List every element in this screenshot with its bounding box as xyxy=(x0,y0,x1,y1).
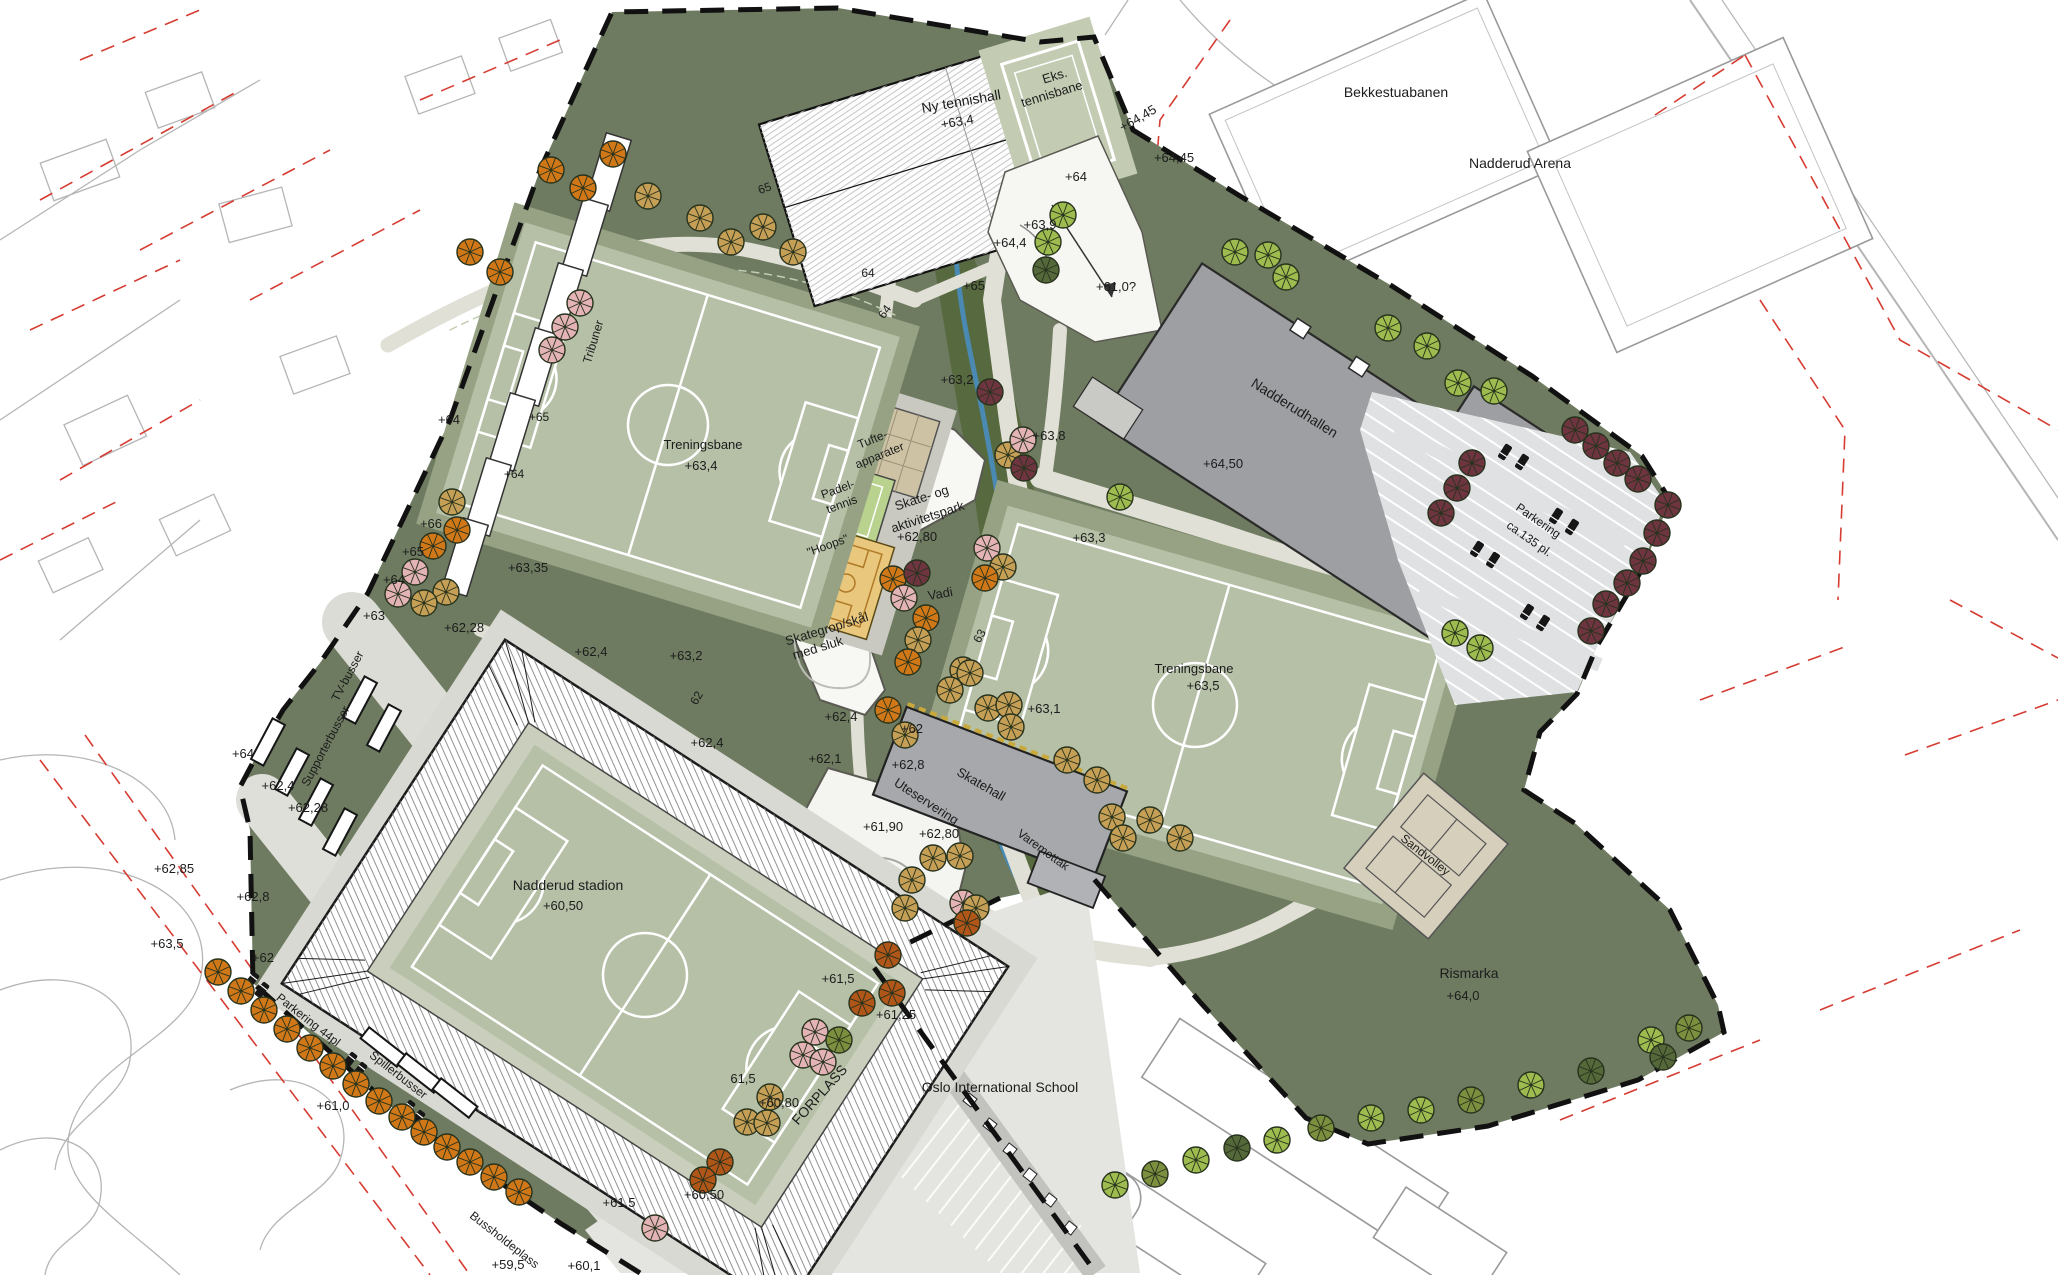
map-label: +63 xyxy=(363,608,385,623)
map-label: Treningsbane xyxy=(663,437,742,452)
tree-icon xyxy=(1167,825,1193,851)
tree-icon xyxy=(1264,1127,1290,1153)
map-label: Oslo International School xyxy=(922,1079,1078,1095)
tree-icon xyxy=(1655,492,1681,518)
tree-icon xyxy=(875,942,901,968)
map-label: +66 xyxy=(420,516,442,531)
tree-icon xyxy=(1102,1172,1128,1198)
tree-icon xyxy=(1578,618,1604,644)
tree-icon xyxy=(274,1016,300,1042)
tree-icon xyxy=(1183,1147,1209,1173)
tree-icon xyxy=(411,1119,437,1145)
tree-icon xyxy=(642,1215,668,1241)
map-label: +64,50 xyxy=(1203,456,1243,471)
map-label: +64 xyxy=(438,412,460,427)
map-label: +63,8 xyxy=(1033,428,1066,443)
map-label: 64 xyxy=(861,266,875,280)
tree-icon xyxy=(1222,239,1248,265)
map-label: +62,4 xyxy=(262,778,295,793)
tree-icon xyxy=(687,205,713,231)
map-label: +62,1 xyxy=(809,751,842,766)
map-label: +65 xyxy=(529,410,550,424)
tree-icon xyxy=(1054,747,1080,773)
tree-icon xyxy=(895,649,921,675)
map-label: +65 xyxy=(402,544,424,559)
map-label: 61,5 xyxy=(730,1071,755,1086)
tree-icon xyxy=(1630,548,1656,574)
map-label: Bekkestuabanen xyxy=(1344,84,1448,100)
map-label: +61,0? xyxy=(1096,279,1136,294)
map-label: +62 xyxy=(901,721,923,736)
tree-icon xyxy=(366,1088,392,1114)
tree-icon xyxy=(1604,450,1630,476)
tree-icon xyxy=(457,1149,483,1175)
tree-icon xyxy=(1444,475,1470,501)
map-label: +60,1 xyxy=(568,1258,601,1273)
tree-icon xyxy=(1445,370,1471,396)
tree-icon xyxy=(600,141,626,167)
map-label: +64,45 xyxy=(1154,150,1194,165)
tree-icon xyxy=(826,1027,852,1053)
tree-icon xyxy=(920,845,946,871)
map-label: +63,5 xyxy=(151,936,184,951)
map-label: +60,50 xyxy=(543,898,583,913)
map-label: +63,35 xyxy=(508,560,548,575)
map-label: +63,3 xyxy=(1073,530,1106,545)
map-label: +62,28 xyxy=(444,620,484,635)
tree-icon xyxy=(718,229,744,255)
tree-icon xyxy=(411,590,437,616)
tree-icon xyxy=(1224,1135,1250,1161)
map-label: +59,5 xyxy=(492,1257,525,1272)
tree-icon xyxy=(343,1071,369,1097)
tree-icon xyxy=(1676,1015,1702,1041)
tree-icon xyxy=(1308,1115,1334,1141)
map-label: +64 xyxy=(504,467,525,481)
map-label: +65 xyxy=(963,278,985,293)
tree-icon xyxy=(891,585,917,611)
tree-icon xyxy=(1428,500,1454,526)
tree-icon xyxy=(434,1134,460,1160)
tree-icon xyxy=(444,517,470,543)
map-label: +60,50 xyxy=(684,1187,724,1202)
map-label: +64,4 xyxy=(994,235,1027,250)
tree-icon xyxy=(892,895,918,921)
tree-icon xyxy=(1107,484,1133,510)
tree-icon xyxy=(750,214,776,240)
tree-icon xyxy=(780,239,806,265)
tree-icon xyxy=(1137,807,1163,833)
tree-icon xyxy=(1644,520,1670,546)
tree-icon xyxy=(1614,570,1640,596)
tree-icon xyxy=(481,1164,507,1190)
map-label: +62,4 xyxy=(691,735,724,750)
map-label: +62,8 xyxy=(237,889,270,904)
tree-icon xyxy=(1358,1105,1384,1131)
tree-icon xyxy=(439,489,465,515)
tree-icon xyxy=(947,843,973,869)
map-label: +62,85 xyxy=(154,861,194,876)
tree-icon xyxy=(1593,591,1619,617)
tree-icon xyxy=(1408,1097,1434,1123)
tree-icon xyxy=(506,1179,532,1205)
tree-icon xyxy=(1650,1044,1676,1070)
map-label: +64 xyxy=(1065,169,1087,184)
map-label: Nadderud Arena xyxy=(1469,155,1571,171)
tree-icon xyxy=(1442,620,1468,646)
map-label: +63,1 xyxy=(1028,701,1061,716)
tree-icon xyxy=(635,183,661,209)
map-label: +64,0 xyxy=(1447,988,1480,1003)
tree-icon xyxy=(1110,825,1136,851)
tree-icon xyxy=(998,714,1024,740)
site-plan-map: Eks.tennisbane+64,45+64,45Bekkestuabanen… xyxy=(0,0,2058,1275)
tree-icon xyxy=(899,867,925,893)
tree-icon xyxy=(1458,1087,1484,1113)
tree-icon xyxy=(539,337,565,363)
map-label: Nadderud stadion xyxy=(513,877,624,893)
tree-icon xyxy=(389,1104,415,1130)
tree-icon xyxy=(1583,433,1609,459)
map-label: +63,4 xyxy=(685,458,718,473)
tree-icon xyxy=(1142,1161,1168,1187)
tree-icon xyxy=(1578,1058,1604,1084)
map-label: +62,28 xyxy=(288,800,328,815)
map-label: +62 xyxy=(252,950,274,965)
map-label: +62,80 xyxy=(919,826,959,841)
tree-icon xyxy=(1011,455,1037,481)
site-plan-page: Eks.tennisbane+64,45+64,45Bekkestuabanen… xyxy=(0,0,2058,1275)
map-label: +62,4 xyxy=(575,644,608,659)
tree-icon xyxy=(1459,450,1485,476)
map-label: +61,5 xyxy=(603,1195,636,1210)
map-label: +62,4 xyxy=(825,709,858,724)
tree-icon xyxy=(1414,333,1440,359)
map-label: +63,2 xyxy=(670,648,703,663)
tree-icon xyxy=(205,959,231,985)
tree-icon xyxy=(849,990,875,1016)
tree-icon xyxy=(228,978,254,1004)
tree-icon xyxy=(457,239,483,265)
tree-icon xyxy=(1562,417,1588,443)
tree-icon xyxy=(957,660,983,686)
map-label: +61,0 xyxy=(317,1098,350,1113)
tree-icon xyxy=(570,175,596,201)
map-label: +64 xyxy=(383,572,405,587)
tree-icon xyxy=(552,314,578,340)
map-label: Rismarka xyxy=(1439,965,1498,981)
tree-icon xyxy=(802,1019,828,1045)
tree-icon xyxy=(1375,315,1401,341)
tree-icon xyxy=(875,697,901,723)
map-label: +61,5 xyxy=(822,971,855,986)
tree-icon xyxy=(879,980,905,1006)
map-label: +64 xyxy=(232,746,254,761)
map-label: +63,5 xyxy=(1187,678,1220,693)
map-label: +62,80 xyxy=(897,529,937,544)
tree-icon xyxy=(1273,264,1299,290)
tree-icon xyxy=(1255,242,1281,268)
tree-icon xyxy=(538,157,564,183)
map-label: Treningsbane xyxy=(1154,661,1233,676)
tree-icon xyxy=(977,379,1003,405)
tree-icon xyxy=(487,259,513,285)
map-label: +60,80 xyxy=(759,1095,799,1110)
tree-icon xyxy=(1035,229,1061,255)
map-label: +63,9 xyxy=(1024,217,1057,232)
tree-icon xyxy=(297,1035,323,1061)
tree-icon xyxy=(567,290,593,316)
tree-icon xyxy=(1467,635,1493,661)
tree-icon xyxy=(904,560,930,586)
map-label: +62,8 xyxy=(892,757,925,772)
tree-icon xyxy=(754,1110,780,1136)
tree-icon xyxy=(1033,257,1059,283)
tree-icon xyxy=(402,559,428,585)
tree-icon xyxy=(1481,378,1507,404)
tree-icon xyxy=(954,910,980,936)
tree-icon xyxy=(1518,1072,1544,1098)
map-label: +63,2 xyxy=(941,372,974,387)
map-label: +61,25 xyxy=(876,1007,916,1022)
tree-icon xyxy=(1084,767,1110,793)
tree-icon xyxy=(972,565,998,591)
tree-icon xyxy=(320,1053,346,1079)
tree-icon xyxy=(1625,466,1651,492)
map-label: +61,90 xyxy=(863,819,903,834)
